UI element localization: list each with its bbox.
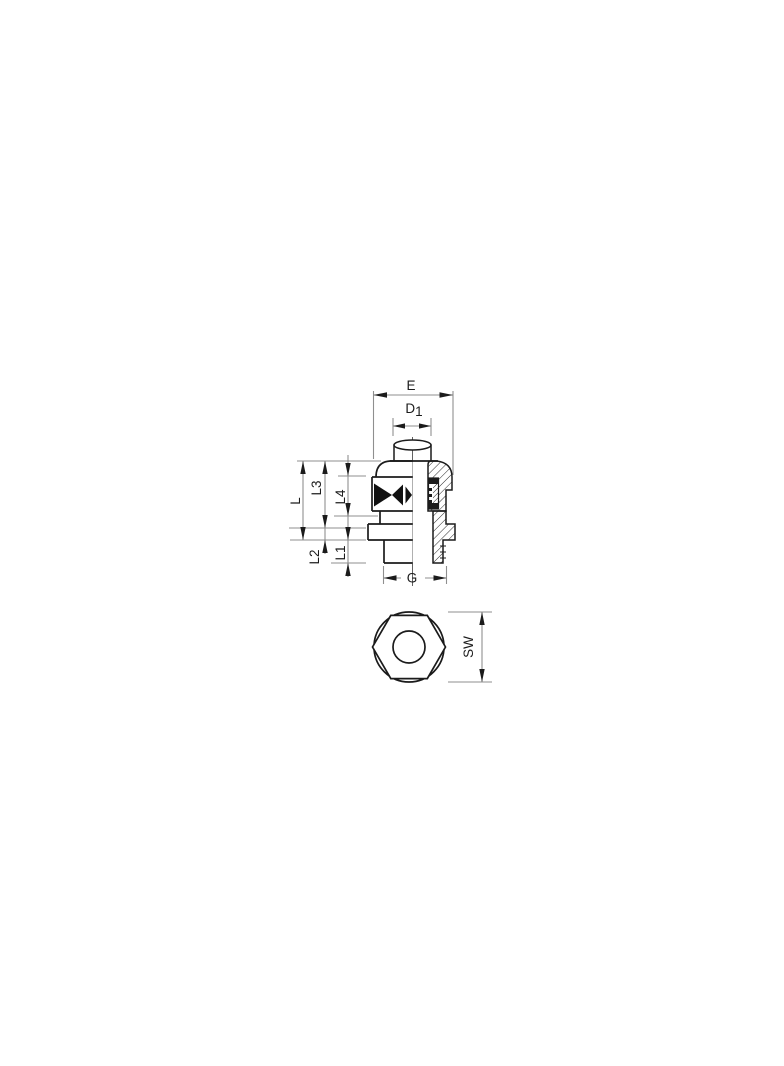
dim-label-L1: L1 <box>333 545 348 560</box>
arrow-l-top <box>300 461 305 474</box>
arrow-g-left <box>384 575 397 580</box>
arrow-sw-bottom <box>479 669 484 682</box>
dim-label-E: E <box>406 378 415 393</box>
arrow-l3-bottom <box>322 515 327 528</box>
arrow-l1-top <box>345 527 350 540</box>
arrow-d1-left <box>393 423 405 428</box>
dim-label-D1: D1 <box>405 401 422 419</box>
main-view <box>368 440 455 563</box>
dim-label-SW: SW <box>461 636 476 658</box>
dim-label-L4: L4 <box>333 489 348 505</box>
drawing-canvas: E D1 G L L3 L4 L2 L1 SW <box>0 0 784 1066</box>
arrow-e-left <box>374 392 388 398</box>
arrow-l-bottom <box>300 527 305 540</box>
hexagon-top-view <box>373 612 446 682</box>
arrow-sw-top <box>479 612 484 625</box>
cable-end-ellipse <box>394 440 431 450</box>
dim-label-L2: L2 <box>307 549 322 564</box>
arrow-e-right <box>440 392 454 398</box>
arrow-l1-bottom <box>345 563 350 576</box>
clamp-insert <box>429 478 439 509</box>
dim-label-D1-base: D <box>405 401 415 416</box>
clamp-insert-bottom-cap <box>429 503 439 509</box>
section-wall-lower <box>433 511 455 563</box>
clamp-insert-tooth-3 <box>429 500 433 503</box>
dim-label-G: G <box>407 571 418 586</box>
arrow-l4-top <box>345 463 350 476</box>
cable-hole-circle <box>393 631 425 663</box>
arrow-d1-right <box>419 423 431 428</box>
clamp-insert-tooth-1 <box>429 488 433 491</box>
clamp-insert-top-cap <box>429 478 439 484</box>
clamp-insert-tooth-2 <box>429 494 433 497</box>
arrow-l3-top <box>322 461 327 474</box>
dim-label-L3: L3 <box>309 480 324 495</box>
arrow-l2-bottom <box>322 540 327 553</box>
arrow-g-right <box>434 575 447 580</box>
dim-label-L: L <box>288 497 303 505</box>
clamp-insert-hatch <box>433 484 439 503</box>
technical-drawing: E D1 G L L3 L4 L2 L1 SW <box>0 0 784 1066</box>
dim-label-D1-sub: 1 <box>415 404 423 419</box>
